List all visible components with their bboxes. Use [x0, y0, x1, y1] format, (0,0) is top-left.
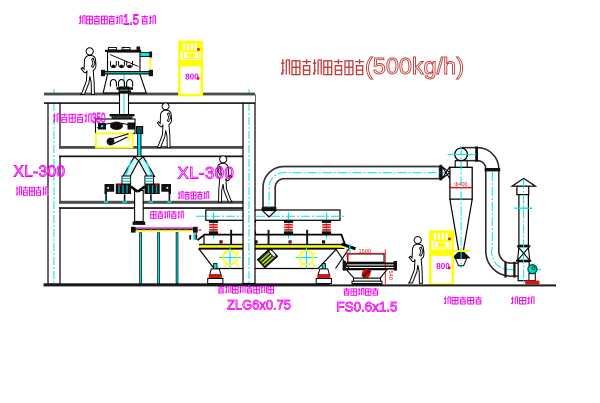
- svg-text:(500kg/h): (500kg/h): [365, 53, 464, 79]
- svg-text:ZLG6x0.75: ZLG6x0.75: [227, 297, 291, 313]
- svg-text:XL-300: XL-300: [14, 164, 66, 181]
- svg-text:540: 540: [387, 271, 393, 280]
- svg-text:1.5: 1.5: [123, 12, 139, 29]
- svg-text:350: 350: [92, 110, 106, 127]
- svg-text:1500: 1500: [359, 249, 371, 255]
- svg-text:XL-300: XL-300: [178, 164, 235, 183]
- svg-text:FS0.6x1.5: FS0.6x1.5: [337, 299, 398, 315]
